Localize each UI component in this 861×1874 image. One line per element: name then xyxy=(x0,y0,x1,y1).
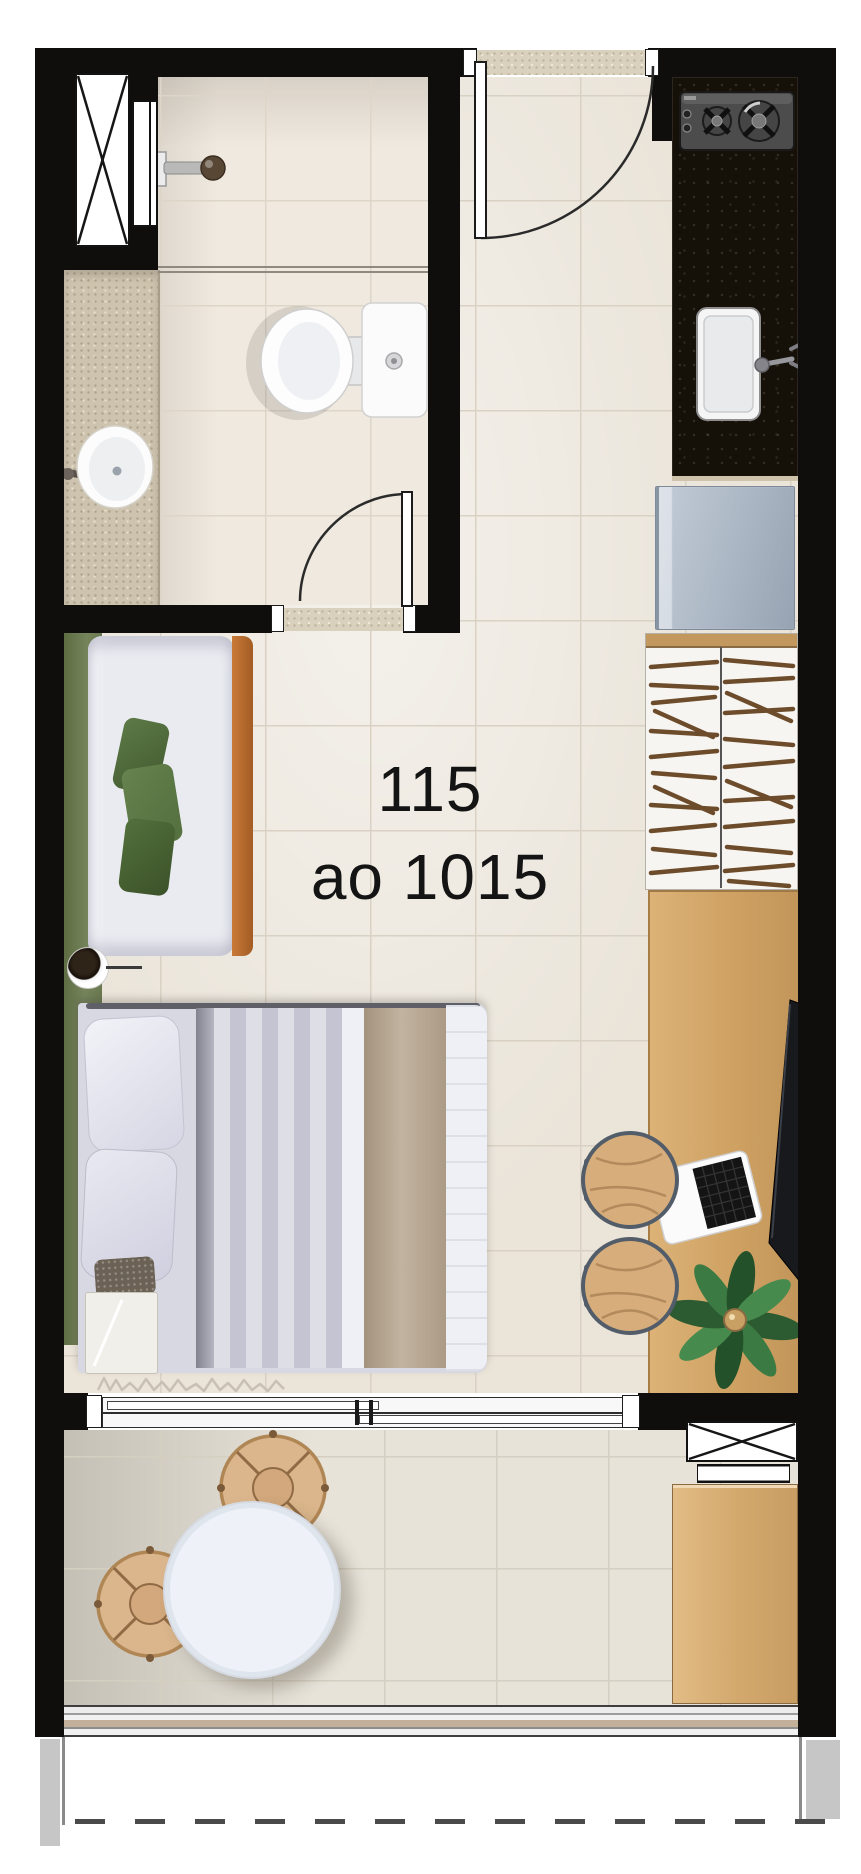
desk-stool-icon xyxy=(576,1232,691,1347)
sofa-back-green xyxy=(64,634,88,958)
setback-dashed-line xyxy=(75,1819,845,1824)
bed-sheet-white-fold xyxy=(342,1008,364,1368)
wall-balcony-door-left xyxy=(64,1393,88,1430)
sliding-door-jamb-left xyxy=(86,1395,102,1428)
wall-bathroom-bottom-left xyxy=(64,605,272,633)
bed-sheet-mid xyxy=(214,1008,342,1368)
kitchen-sink-icon xyxy=(695,305,800,423)
shower-glass-partition-line2 xyxy=(158,271,428,273)
exterior-pier-right xyxy=(806,1740,840,1819)
sliding-door-panel-right xyxy=(359,1415,633,1424)
exterior-line-left xyxy=(62,1737,65,1825)
shower-wall-panel xyxy=(132,100,158,227)
sliding-door-panel-left xyxy=(107,1401,379,1410)
bathroom-door-icon xyxy=(280,480,430,635)
wall-bathroom-right xyxy=(428,77,460,605)
sofa-wood-frame xyxy=(232,636,253,956)
shower-wall-panel-line xyxy=(149,102,151,225)
exterior-line-right xyxy=(799,1737,802,1822)
balcony-window-x-icon xyxy=(686,1421,798,1462)
bathroom-sink-icon xyxy=(60,420,170,520)
cooktop-icon xyxy=(678,88,798,154)
ventilation-shaft-x-icon xyxy=(75,73,130,247)
unit-number-line2: ao 1015 xyxy=(280,840,580,914)
unit-number-line1: 115 xyxy=(280,752,580,826)
bed-pillow xyxy=(83,1015,186,1154)
wardrobe-hangers-icon xyxy=(645,645,798,890)
balcony-window-sill-vent xyxy=(697,1464,790,1483)
sofa-cushion-green xyxy=(118,817,177,897)
shower-glass-partition xyxy=(158,266,428,268)
sliding-door-handle xyxy=(355,1400,359,1425)
balcony-wood-cabinet xyxy=(672,1484,798,1704)
shower-head-icon xyxy=(150,140,235,195)
bed-sheet-fold xyxy=(196,1008,214,1368)
floor-plan-canvas: 115 ao 1015 xyxy=(0,0,861,1874)
floor-lamp-icon xyxy=(67,947,109,989)
kitchen-counter-edge xyxy=(672,476,798,481)
balcony-round-table xyxy=(163,1501,341,1679)
rug-fringe-icon xyxy=(92,1372,292,1396)
exterior-pier-left xyxy=(40,1739,60,1846)
bed-duvet-white xyxy=(446,1005,487,1371)
sliding-door-jamb-right xyxy=(622,1395,640,1428)
refrigerator xyxy=(655,486,795,630)
bed-blanket-beige xyxy=(364,1008,446,1368)
wall-right xyxy=(798,48,836,1737)
sliding-door-handle xyxy=(369,1400,373,1425)
balcony-railing xyxy=(64,1705,798,1737)
wall-left xyxy=(35,48,64,1737)
toilet-icon xyxy=(245,295,432,425)
nightstand-highlight xyxy=(85,1292,158,1374)
sliding-door xyxy=(102,1397,638,1428)
floor-lamp-arm xyxy=(106,966,142,969)
entrance-door-icon xyxy=(460,48,670,248)
desk-stool-icon xyxy=(576,1126,691,1241)
